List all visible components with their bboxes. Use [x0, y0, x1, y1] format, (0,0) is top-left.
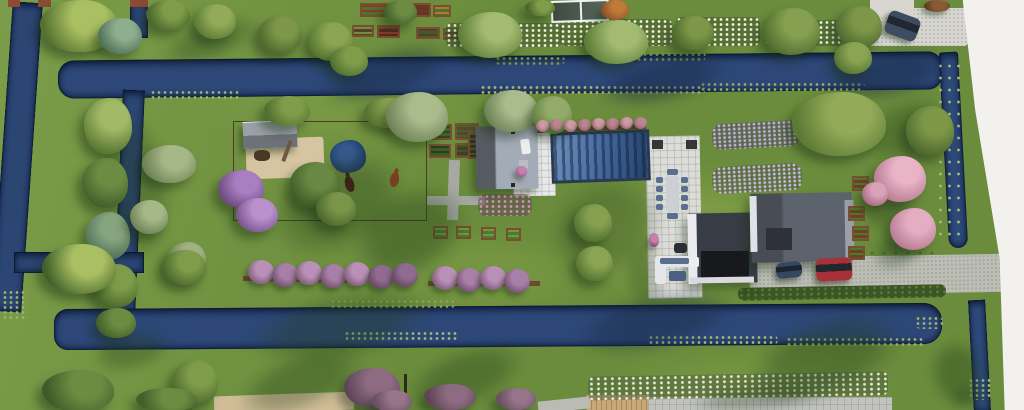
tree-sage	[142, 145, 196, 183]
tree	[264, 96, 310, 126]
grass-planter-box	[848, 206, 865, 221]
purple-ball-shrub	[480, 266, 506, 290]
dining-chair	[667, 169, 678, 175]
aerial-site-plan-render	[0, 0, 1024, 410]
lounge-armchair	[689, 257, 699, 267]
pool-ball-shrub	[606, 118, 619, 130]
tree	[330, 46, 368, 76]
tree	[258, 16, 302, 53]
tree	[792, 92, 886, 156]
tree-shadow	[947, 383, 989, 410]
dining-chair	[656, 177, 663, 183]
dining-chair	[667, 213, 678, 219]
green-square-bed	[481, 227, 496, 240]
tree-pink	[862, 182, 888, 206]
canal-dock-plank	[38, 0, 51, 7]
flower-hedge-lavender	[711, 120, 800, 151]
flower-hedge-lavender	[711, 163, 802, 195]
tree	[525, 0, 555, 16]
tree	[316, 192, 356, 226]
dining-table	[666, 176, 679, 212]
pool-ball-shrub	[578, 119, 591, 131]
tree	[136, 388, 196, 410]
tree-pink	[890, 208, 936, 250]
tree	[146, 0, 190, 30]
house-right-gable-wall	[750, 196, 758, 252]
grill	[674, 243, 687, 253]
tree	[42, 370, 114, 410]
car-dark-blue	[775, 261, 803, 280]
raised-veg-bed	[377, 25, 400, 38]
canal-dock-plank	[8, 0, 20, 7]
tree	[762, 8, 820, 55]
purple-ball-shrub	[368, 265, 394, 289]
tree-orange	[601, 0, 629, 20]
pool-ball-shrub	[536, 120, 549, 132]
purple-ball-shrub	[456, 268, 482, 292]
purple-ball-shrub	[248, 260, 274, 284]
tree	[584, 20, 648, 64]
shrub-purple	[496, 388, 536, 410]
round-planter	[924, 0, 950, 12]
tree	[834, 42, 872, 74]
terrace-planter	[652, 140, 663, 149]
sofa-cushions	[660, 258, 689, 264]
tree	[162, 250, 206, 285]
pool-ball-shrub	[620, 117, 633, 129]
dining-chair	[656, 186, 663, 192]
purple-ball-shrub	[344, 262, 370, 286]
pool-ball-shrub	[564, 120, 577, 132]
pool-ball-shrub	[592, 118, 605, 130]
tree-purple	[236, 198, 278, 232]
green-square-bed	[506, 228, 521, 241]
grass-planter-box	[848, 246, 865, 260]
tree	[42, 244, 116, 294]
terrace-planter	[686, 140, 697, 149]
house-front-wall	[690, 276, 754, 283]
purple-ball-shrub	[504, 269, 530, 293]
dining-chair	[656, 195, 663, 201]
kitchen-garden-bed	[429, 144, 451, 158]
tree	[96, 308, 136, 338]
dining-chair	[681, 195, 688, 201]
purple-ball-shrub	[320, 264, 346, 288]
flower-hedge-pink	[478, 194, 532, 216]
shrub-purple	[372, 390, 412, 410]
car-red	[815, 257, 852, 282]
water-grass	[915, 316, 943, 329]
dining-chair	[681, 204, 688, 210]
house-roof-hatch	[766, 228, 792, 250]
canal-bank-reeds	[495, 56, 565, 65]
tree	[576, 246, 613, 281]
purple-ball-shrub	[296, 261, 322, 285]
canal-dock-plank	[130, 0, 148, 7]
tree	[384, 0, 417, 24]
tree	[98, 18, 142, 54]
terrace-plant-pink	[649, 233, 659, 247]
left-canal-plants	[2, 290, 28, 320]
terrace-plant-pink	[516, 166, 527, 177]
shrub-purple	[424, 384, 476, 410]
pool-house-roof	[475, 125, 538, 189]
tree	[194, 4, 236, 39]
tree-sage	[386, 92, 448, 142]
tree	[906, 106, 954, 156]
barn-yard-trough	[254, 150, 270, 161]
grass-planter-box	[852, 226, 869, 241]
dining-chair	[681, 177, 688, 183]
tree	[458, 12, 522, 58]
water-grass	[150, 90, 242, 99]
pool-ball-shrub	[634, 117, 647, 129]
swimming-pool	[550, 129, 651, 183]
tree	[672, 16, 714, 50]
pool-house-post	[511, 183, 515, 187]
raised-veg-bed	[352, 25, 374, 37]
purple-ball-shrub	[392, 263, 418, 287]
purple-ball-shrub	[272, 263, 298, 287]
house-left-wall	[687, 214, 697, 284]
purple-ball-shrub	[432, 266, 458, 290]
raised-veg-bed	[433, 5, 451, 17]
pool-ball-shrub	[550, 119, 563, 131]
dining-chair	[681, 186, 688, 192]
lounge-chair	[520, 138, 531, 154]
tree	[84, 98, 132, 154]
tree-sage	[484, 90, 538, 132]
tree	[82, 158, 128, 208]
tree-sage	[130, 200, 168, 234]
coffee-table	[669, 271, 686, 281]
dining-chair	[656, 204, 663, 210]
tree	[574, 204, 612, 242]
